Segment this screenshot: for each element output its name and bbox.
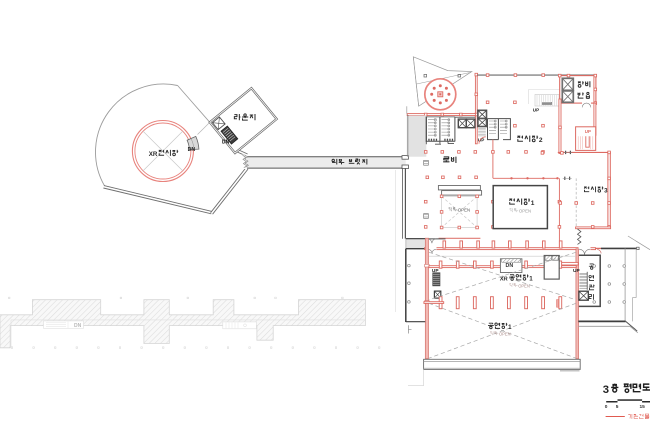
svg-text:15: 15	[640, 404, 646, 410]
svg-text:UP: UP	[585, 129, 591, 134]
svg-text:UP: UP	[533, 107, 539, 112]
svg-text:OPEN: OPEN	[499, 331, 511, 336]
svg-text:OPEN: OPEN	[518, 283, 530, 288]
svg-text:DN: DN	[222, 139, 230, 145]
svg-text:UP: UP	[573, 268, 580, 274]
svg-text:2: 2	[539, 137, 543, 144]
svg-text:XR: XR	[149, 151, 158, 158]
svg-text:DN: DN	[74, 323, 82, 329]
svg-text:1: 1	[529, 276, 533, 283]
svg-text:0: 0	[605, 404, 608, 410]
svg-text:1: 1	[508, 324, 512, 331]
svg-text:OPEN: OPEN	[458, 208, 470, 213]
svg-text:1: 1	[531, 200, 535, 207]
svg-text:3: 3	[603, 384, 609, 396]
svg-text:DN: DN	[188, 147, 196, 153]
svg-text:XR: XR	[500, 277, 509, 283]
svg-text:3: 3	[604, 188, 608, 195]
svg-text:DN: DN	[506, 263, 514, 269]
svg-text:UP: UP	[478, 137, 484, 142]
svg-text:5: 5	[616, 404, 619, 410]
svg-text:OPEN: OPEN	[519, 209, 531, 214]
